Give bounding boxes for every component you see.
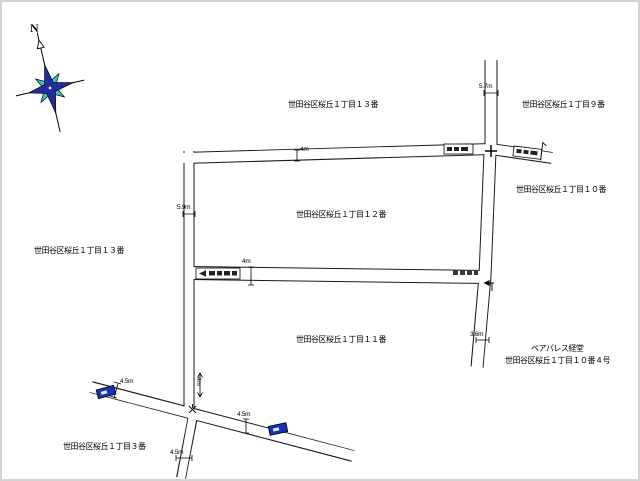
area-label-block-13-top: 世田谷区桜丘１丁目１３番 <box>288 99 378 110</box>
dimension-label-w-5-7: 5.7m <box>479 83 492 90</box>
area-label-block-10: 世田谷区桜丘１丁目１０番 <box>516 184 606 195</box>
area-label-block-12: 世田谷区桜丘１丁目１２番 <box>296 209 386 220</box>
dimension-label-w-4-5-bot: 4.5m <box>170 449 183 456</box>
label-layer: 世田谷区桜丘１丁目１３番世田谷区桜丘１丁目９番世田谷区桜丘１丁目１０番世田谷区桜… <box>0 0 640 481</box>
area-label-block-3: 世田谷区桜丘１丁目３番 <box>63 441 146 452</box>
dimension-label-w-4-mid: 4m <box>242 258 250 265</box>
dimension-label-w-4-left: 4m <box>195 377 202 385</box>
area-label-block-11: 世田谷区桜丘１丁目１１番 <box>296 334 386 345</box>
dimension-label-w-4-top: 4m <box>300 146 308 153</box>
area-label-block-9: 世田谷区桜丘１丁目９番 <box>522 99 605 110</box>
dimension-label-w-4-5-bus: 4.5m <box>120 378 133 385</box>
area-label-building-address: 世田谷区桜丘１丁目１０番４号 <box>505 355 610 366</box>
map-canvas: N 世田谷区桜丘１丁目１３番世田谷区桜丘１丁目９番世田谷区桜丘１丁目１０番世田谷… <box>0 0 640 481</box>
dimension-label-w-3-6: 3.6m <box>470 331 483 338</box>
area-label-building-name: ペアパレス経堂 <box>531 343 583 354</box>
dimension-label-w-4-5-diag: 4.5m <box>237 411 250 418</box>
area-label-block-13-left: 世田谷区桜丘１丁目１３番 <box>34 245 124 256</box>
dimension-label-w-5-9: 5.9m <box>177 204 190 211</box>
